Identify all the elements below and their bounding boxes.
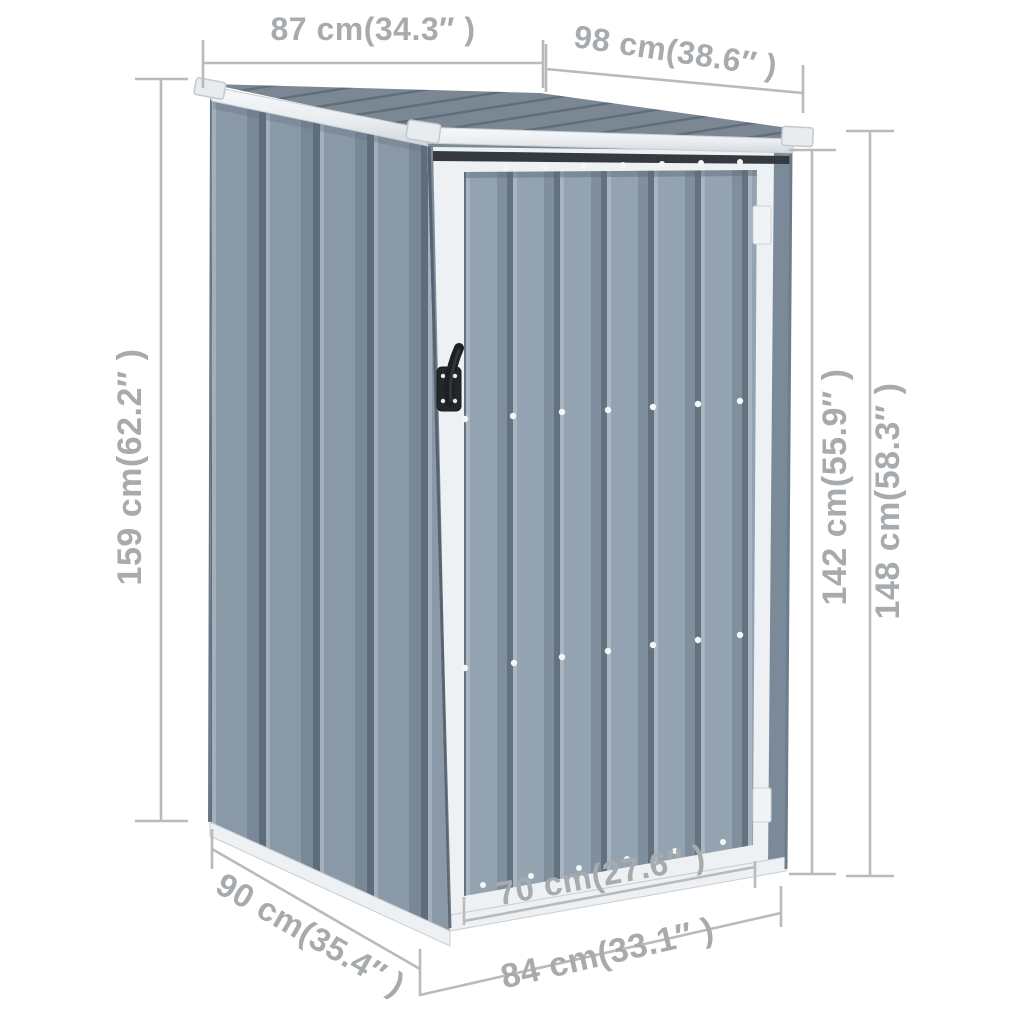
dim-label-roof-depth: 87 cm(34.3″ ) [270,11,475,47]
product-image: 87 cm(34.3″ ) 98 cm(38.6″ ) 159 cm(62.2″… [0,0,1024,1024]
left-wall [210,97,450,931]
dim-label-height-door-side: 142 cm(55.9″ ) [816,369,854,606]
dim-label-height-left: 159 cm(62.2″ ) [111,349,149,586]
dim-height-left: 159 cm(62.2″ ) [111,79,188,821]
product-dimension-diagram: 87 cm(34.3″ ) 98 cm(38.6″ ) 159 cm(62.2″… [0,0,1024,1024]
dim-height-right: 148 cm(58.3″ ) [846,131,907,876]
dim-roof-width-top-right: 98 cm(38.6″ ) [546,18,803,113]
door-hinge-top [753,206,771,244]
door-panel [464,170,757,896]
roof-corner-cap-left [194,77,227,99]
door-hinge-bottom [753,788,771,822]
roof-corner-cap-right [781,126,813,147]
shed-illustration [194,77,814,946]
roof-corner-cap-front [406,120,442,144]
front-face [427,142,792,931]
dim-roof-depth-top-left: 87 cm(34.3″ ) [203,11,543,88]
dim-label-height-right: 148 cm(58.3″ ) [869,383,907,620]
dim-label-base-width: 84 cm(33.1″ ) [497,910,717,996]
dim-height-door-side: 142 cm(55.9″ ) [789,150,854,874]
